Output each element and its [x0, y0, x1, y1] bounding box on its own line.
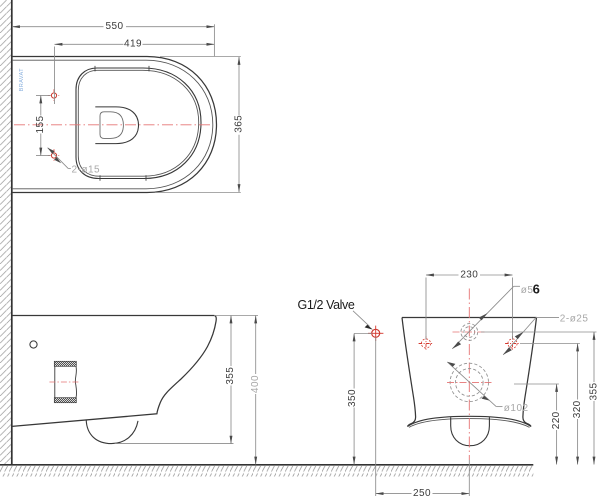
svg-text:355: 355	[225, 367, 236, 385]
svg-text:355: 355	[588, 383, 599, 401]
svg-text:G1/2 Valve: G1/2 Valve	[298, 298, 355, 312]
svg-text:350: 350	[347, 389, 358, 407]
svg-text:ø5: ø5	[521, 285, 534, 296]
svg-text:2-ø25: 2-ø25	[560, 314, 589, 325]
svg-text:550: 550	[106, 21, 124, 32]
svg-text:BRAVAT: BRAVAT	[19, 68, 25, 91]
svg-text:419: 419	[124, 39, 142, 50]
svg-text:400: 400	[250, 375, 261, 393]
svg-text:250: 250	[413, 488, 431, 499]
svg-text:155: 155	[35, 116, 46, 134]
svg-text:ø102: ø102	[504, 403, 529, 414]
svg-text:365: 365	[234, 115, 245, 133]
svg-text:6: 6	[533, 282, 540, 297]
svg-text:230: 230	[460, 270, 478, 281]
svg-text:2-ø15: 2-ø15	[72, 164, 101, 175]
svg-text:220: 220	[551, 411, 562, 429]
svg-text:320: 320	[572, 400, 583, 418]
